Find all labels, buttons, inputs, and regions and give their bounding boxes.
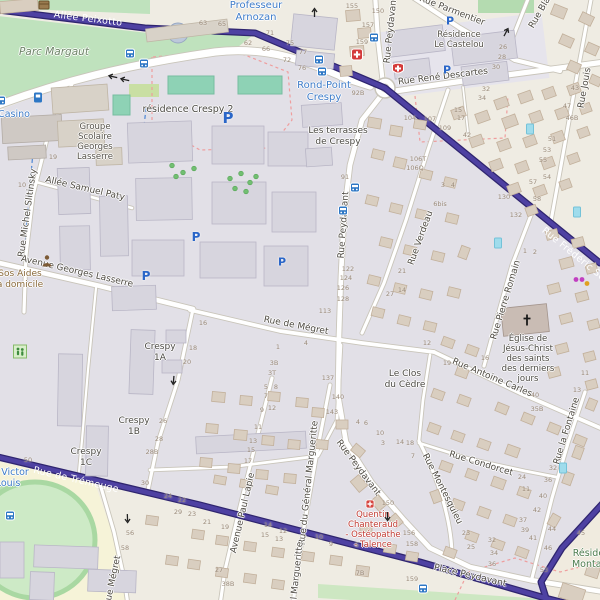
building <box>200 242 256 278</box>
building <box>355 565 369 577</box>
building <box>60 226 91 271</box>
building <box>212 391 226 402</box>
building <box>296 397 309 407</box>
building <box>166 330 186 343</box>
building <box>228 463 241 473</box>
building <box>358 27 372 38</box>
building <box>405 551 418 562</box>
building <box>336 420 348 429</box>
building <box>329 555 342 566</box>
building <box>301 103 342 128</box>
building <box>191 529 204 540</box>
building <box>51 84 109 114</box>
building <box>288 439 301 449</box>
building <box>290 14 337 50</box>
building <box>136 178 193 221</box>
building <box>206 423 219 433</box>
building <box>367 117 382 129</box>
building <box>129 330 155 395</box>
building <box>243 573 256 584</box>
building <box>88 569 137 593</box>
building <box>264 246 308 286</box>
building <box>340 65 353 76</box>
building <box>145 515 158 526</box>
building <box>312 407 325 417</box>
building <box>165 555 178 566</box>
building <box>256 469 269 479</box>
building <box>212 126 264 164</box>
building <box>262 435 275 445</box>
building <box>112 285 157 311</box>
building <box>215 567 228 578</box>
building <box>243 541 256 552</box>
building <box>57 119 104 147</box>
building <box>271 579 284 590</box>
building <box>389 125 403 137</box>
building <box>99 196 128 256</box>
building <box>57 354 82 426</box>
building <box>127 121 192 163</box>
building <box>1 114 62 143</box>
building <box>301 551 314 562</box>
building <box>346 9 361 21</box>
building <box>86 426 109 476</box>
building <box>132 240 184 276</box>
building <box>212 182 266 224</box>
building <box>305 147 332 167</box>
building <box>213 475 226 485</box>
building <box>265 485 278 495</box>
building <box>268 132 308 166</box>
building <box>413 119 426 130</box>
building <box>96 148 123 166</box>
building <box>271 547 284 558</box>
map-tiles <box>0 0 600 600</box>
building <box>215 535 228 546</box>
building <box>8 145 47 160</box>
building <box>187 559 200 570</box>
building <box>268 391 281 401</box>
building <box>34 545 99 569</box>
building <box>360 524 372 533</box>
building <box>383 543 396 554</box>
building <box>0 542 24 578</box>
building <box>234 429 248 440</box>
building <box>30 572 55 600</box>
building <box>350 45 365 56</box>
building <box>162 360 182 373</box>
building <box>501 304 550 337</box>
building <box>200 457 213 467</box>
building <box>57 167 91 214</box>
map-canvas[interactable]: Allée PeixottoRue de TrémeugeRue Frédéri… <box>0 0 600 600</box>
building <box>316 439 329 449</box>
building <box>284 473 297 483</box>
building <box>239 479 252 489</box>
building <box>240 395 253 405</box>
building <box>272 192 316 232</box>
